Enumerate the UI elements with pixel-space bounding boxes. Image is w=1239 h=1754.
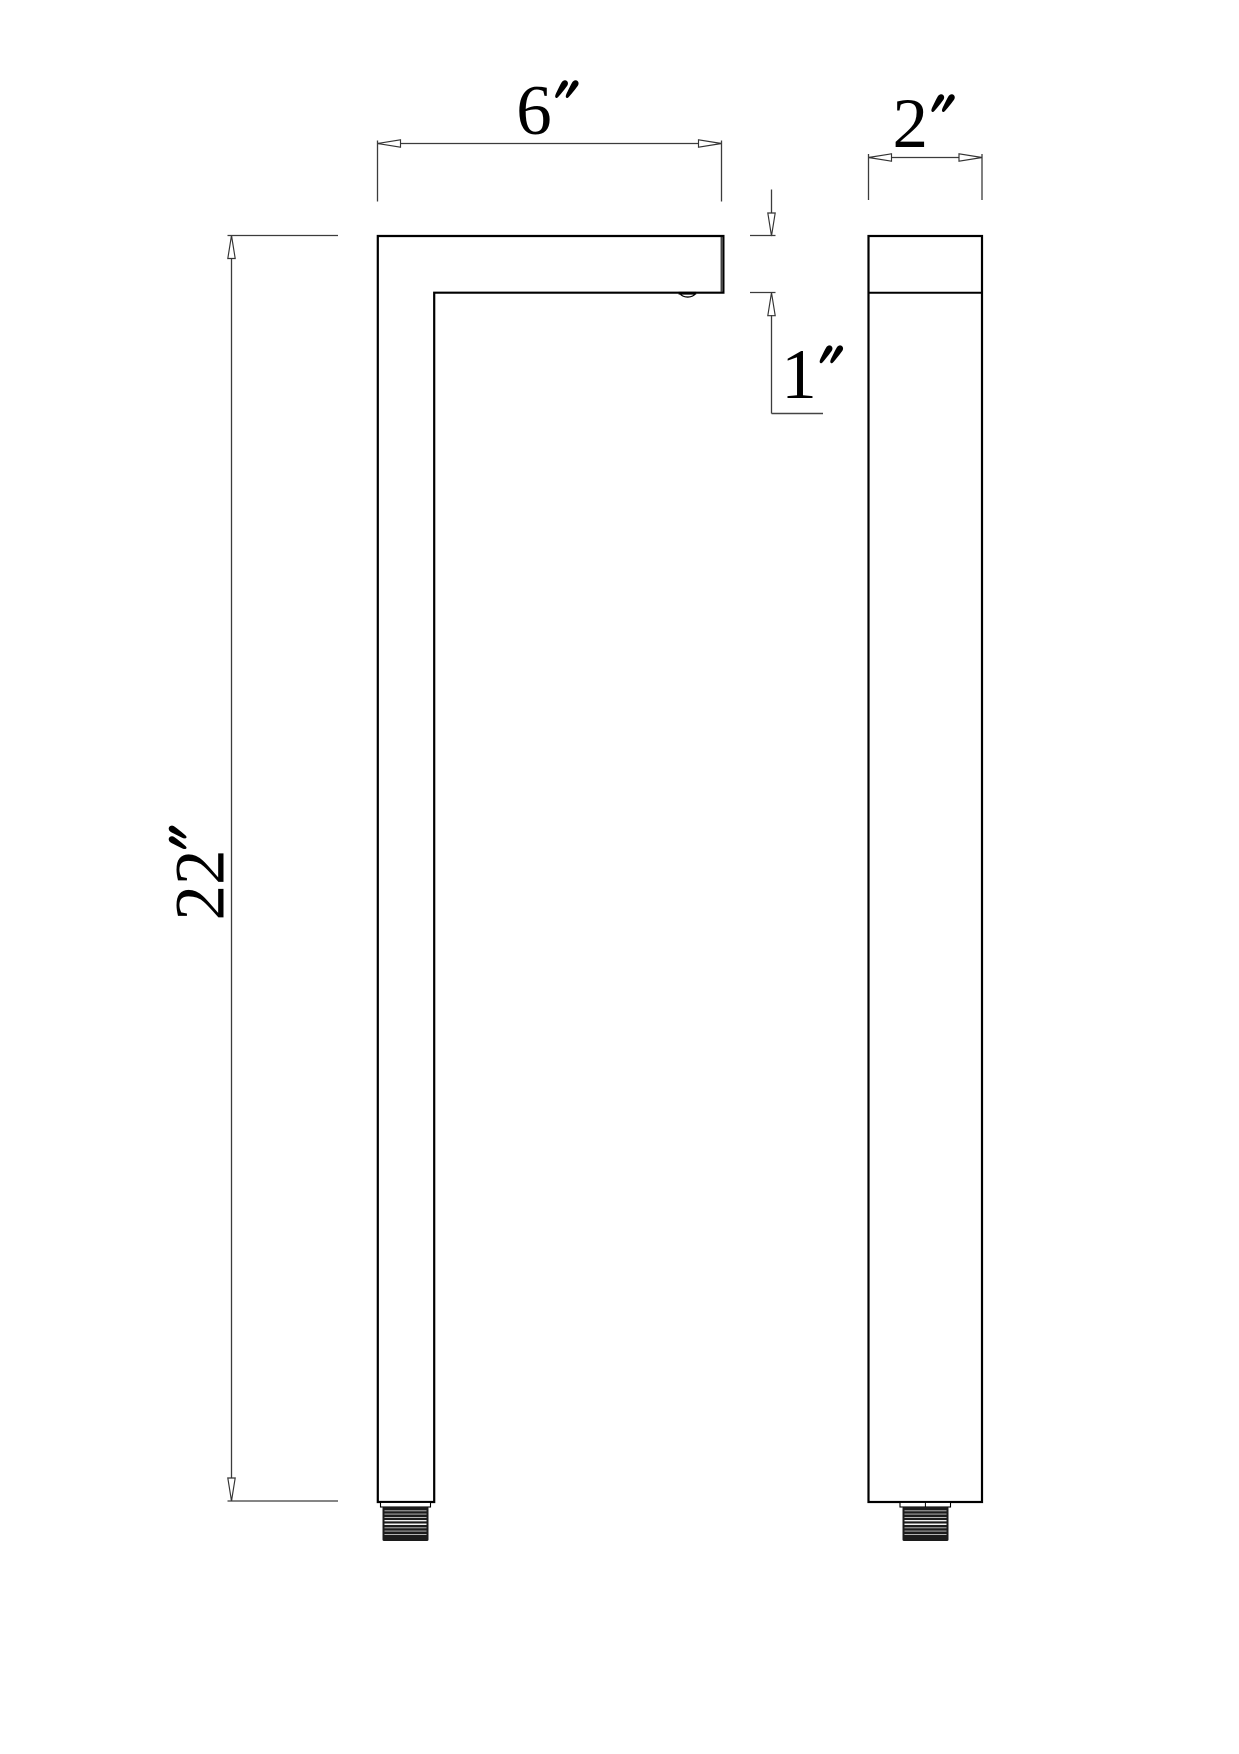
svg-text:1: 1 bbox=[781, 336, 817, 414]
svg-text:22: 22 bbox=[161, 850, 239, 921]
svg-text:2: 2 bbox=[893, 85, 929, 163]
svg-text:6: 6 bbox=[516, 72, 552, 150]
